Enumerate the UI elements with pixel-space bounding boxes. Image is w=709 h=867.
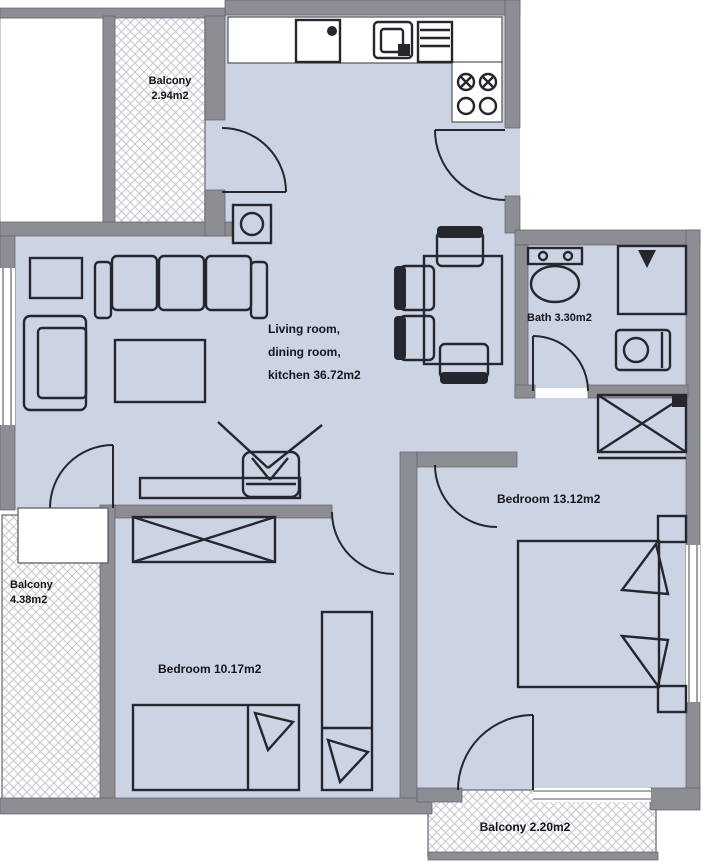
label-balcony-top: Balcony 2.94m2 bbox=[125, 74, 215, 104]
adjacent-area bbox=[0, 18, 103, 223]
window-bedroom-right bbox=[686, 545, 700, 702]
label-living-line2: dining room, bbox=[268, 341, 361, 364]
label-balcony-top-area: 2.94m2 bbox=[125, 89, 215, 104]
label-bedroom-right: Bedroom 13.12m2 bbox=[497, 492, 600, 506]
label-living-room: Living room, dining room, kitchen 36.72m… bbox=[268, 318, 361, 387]
label-balcony-left-area: 4.38m2 bbox=[10, 593, 94, 608]
label-balcony-left-name: Balcony bbox=[10, 578, 94, 593]
label-balcony-top-name: Balcony bbox=[125, 74, 215, 89]
balcony-top-floor bbox=[113, 16, 205, 224]
window-living-left bbox=[0, 268, 15, 425]
floor-plan-drawing bbox=[0, 0, 709, 867]
balcony-vestibule bbox=[18, 508, 108, 563]
label-balcony-left: Balcony 4.38m2 bbox=[10, 578, 94, 608]
sofa bbox=[95, 256, 267, 318]
label-living-line1: Living room, bbox=[268, 318, 361, 341]
floor-plan-page: Balcony 2.94m2 Living room, dining room,… bbox=[0, 0, 709, 867]
window-balcony-bottom bbox=[533, 788, 651, 802]
label-living-line3: kitchen 36.72m2 bbox=[268, 364, 361, 387]
label-balcony-bottom: Balcony 2.20m2 bbox=[440, 820, 610, 834]
label-bath: Bath 3.30m2 bbox=[527, 312, 592, 324]
label-bedroom-bottom: Bedroom 10.17m2 bbox=[158, 662, 261, 676]
